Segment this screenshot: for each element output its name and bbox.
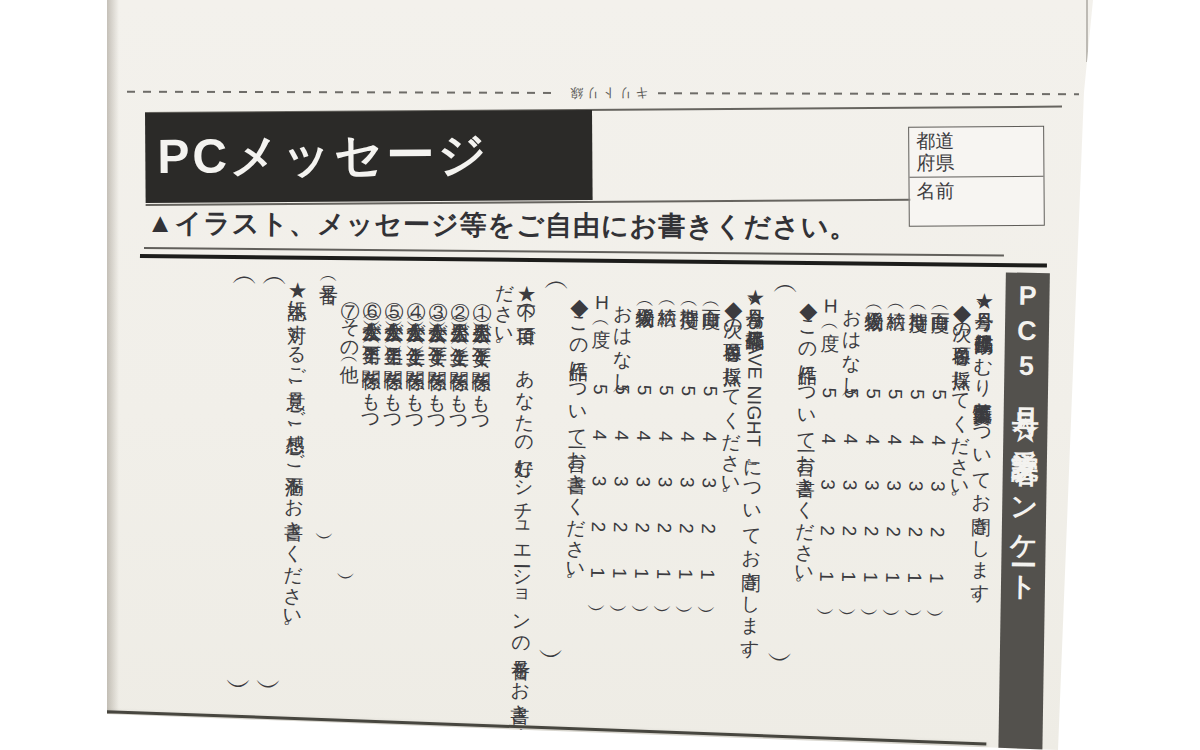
cut-dash-right bbox=[658, 92, 1079, 95]
rating-label: H度 bbox=[591, 292, 612, 314]
close-paren: ） bbox=[904, 598, 925, 599]
open-paren: （ bbox=[908, 298, 929, 299]
cut-dash-left bbox=[127, 91, 557, 94]
close-paren: ） bbox=[537, 634, 567, 635]
rating-scale[interactable]: 5 4 3 2 1 bbox=[609, 384, 633, 593]
header-title: PCメッセージ bbox=[145, 110, 593, 203]
question-block-2: ★今月号、掲載作品『SLAVE NIGHT』についてお聞きします。 ◆次の各項目… bbox=[539, 271, 766, 748]
rating-scale[interactable]: 5 4 3 2 1 bbox=[838, 388, 862, 597]
rating-scale[interactable]: 5 4 3 2 1 bbox=[675, 385, 699, 594]
close-paren: ） bbox=[587, 593, 608, 594]
situation-block: ★下の項目で、あなたの好むシチュエーションの番号をお書きください。 ①主人公（男… bbox=[310, 268, 537, 745]
close-paren: ） bbox=[697, 595, 718, 596]
cut-line-label: キリトリ線 bbox=[567, 84, 648, 102]
open-paren: （ bbox=[864, 298, 885, 299]
close-paren: ） bbox=[838, 597, 859, 598]
close-paren: ） bbox=[631, 594, 652, 595]
situation-heading: ★下の項目で、あなたの好むシチュエーションの番号をお書きください。 bbox=[486, 270, 537, 745]
open-paren: （ bbox=[657, 294, 678, 295]
rating-scale[interactable]: 5 4 3 2 1 bbox=[587, 384, 611, 593]
close-paren: ） bbox=[675, 594, 696, 595]
close-paren: ） bbox=[882, 598, 903, 599]
question-block-1: ★今月号、掲載作品『湯けむり慕情艶姿三人妻』についてお聞きします。 ◆次の各項目… bbox=[768, 275, 995, 750]
rating-scale[interactable]: 5 4 3 2 1 bbox=[653, 385, 677, 594]
open-paren: （ bbox=[886, 298, 907, 299]
rating-label: おはなし bbox=[841, 296, 863, 385]
close-paren: ） bbox=[926, 598, 947, 599]
write-in-area[interactable]: （） bbox=[227, 268, 256, 740]
rating-label: おはなし bbox=[612, 292, 634, 381]
survey-columns: ★今月号、掲載作品『湯けむり慕情艶姿三人妻』についてお聞きします。 ◆次の各項目… bbox=[136, 265, 995, 750]
paper-left-shadow bbox=[107, 0, 119, 714]
rating-label: H度 bbox=[820, 296, 841, 318]
survey-banner: PC5月号☆愛読者アンケート bbox=[998, 272, 1050, 750]
rating-scale[interactable]: 5 4 3 2 1 bbox=[631, 385, 655, 594]
close-paren: ） bbox=[315, 521, 336, 522]
prefecture-field[interactable]: 都道 府県 bbox=[909, 127, 1043, 178]
rating-scale[interactable]: 5 4 3 2 1 bbox=[860, 388, 884, 597]
rating-scale[interactable]: 5 4 3 2 1 bbox=[926, 389, 950, 598]
illustration-instruction: ▲イラスト、メッセージ等をご自由にお書きください。 bbox=[147, 205, 858, 245]
close-paren: ） bbox=[766, 637, 796, 638]
rating-scale[interactable]: 5 4 3 2 1 bbox=[816, 388, 840, 597]
open-paren: （ bbox=[612, 381, 633, 382]
open-paren: （ bbox=[591, 314, 612, 315]
address-table: 都道 府県 名前 bbox=[908, 126, 1045, 227]
cut-line: キリトリ線 bbox=[127, 83, 1079, 103]
rating-scale[interactable]: 5 4 3 2 1 bbox=[882, 389, 906, 598]
open-paren: （ bbox=[841, 385, 862, 386]
rating-scale[interactable]: 5 4 3 2 1 bbox=[697, 386, 721, 595]
feedback-block: ★本誌に対するご意見、ご感想、ご不満をお書きください。 （） （） bbox=[227, 266, 308, 741]
open-paren: （ bbox=[820, 318, 841, 319]
open-paren: （ bbox=[701, 295, 722, 296]
page-edge-line bbox=[1086, 0, 1088, 62]
close-paren: ） bbox=[816, 596, 837, 597]
survey-section: PC5月号☆愛読者アンケート ★今月号、掲載作品『湯けむり慕情艶姿三人妻』につい… bbox=[129, 255, 1052, 750]
open-paren: （ bbox=[635, 295, 656, 296]
survey-postcard: キリトリ線 PCメッセージ 都道 府県 名前 ▲イラスト、メッセージ等をご自由に… bbox=[107, 0, 1095, 750]
open-paren: （ bbox=[679, 295, 700, 296]
close-paren: ） bbox=[609, 593, 630, 594]
name-field[interactable]: 名前 bbox=[909, 177, 1043, 228]
close-paren: ） bbox=[336, 561, 357, 562]
rating-scale[interactable]: 5 4 3 2 1 bbox=[904, 389, 928, 598]
close-paren: ） bbox=[860, 597, 881, 598]
close-paren: ） bbox=[255, 664, 285, 665]
open-paren: （ bbox=[930, 299, 951, 300]
close-paren: ） bbox=[653, 594, 674, 595]
close-paren: ） bbox=[225, 664, 255, 665]
